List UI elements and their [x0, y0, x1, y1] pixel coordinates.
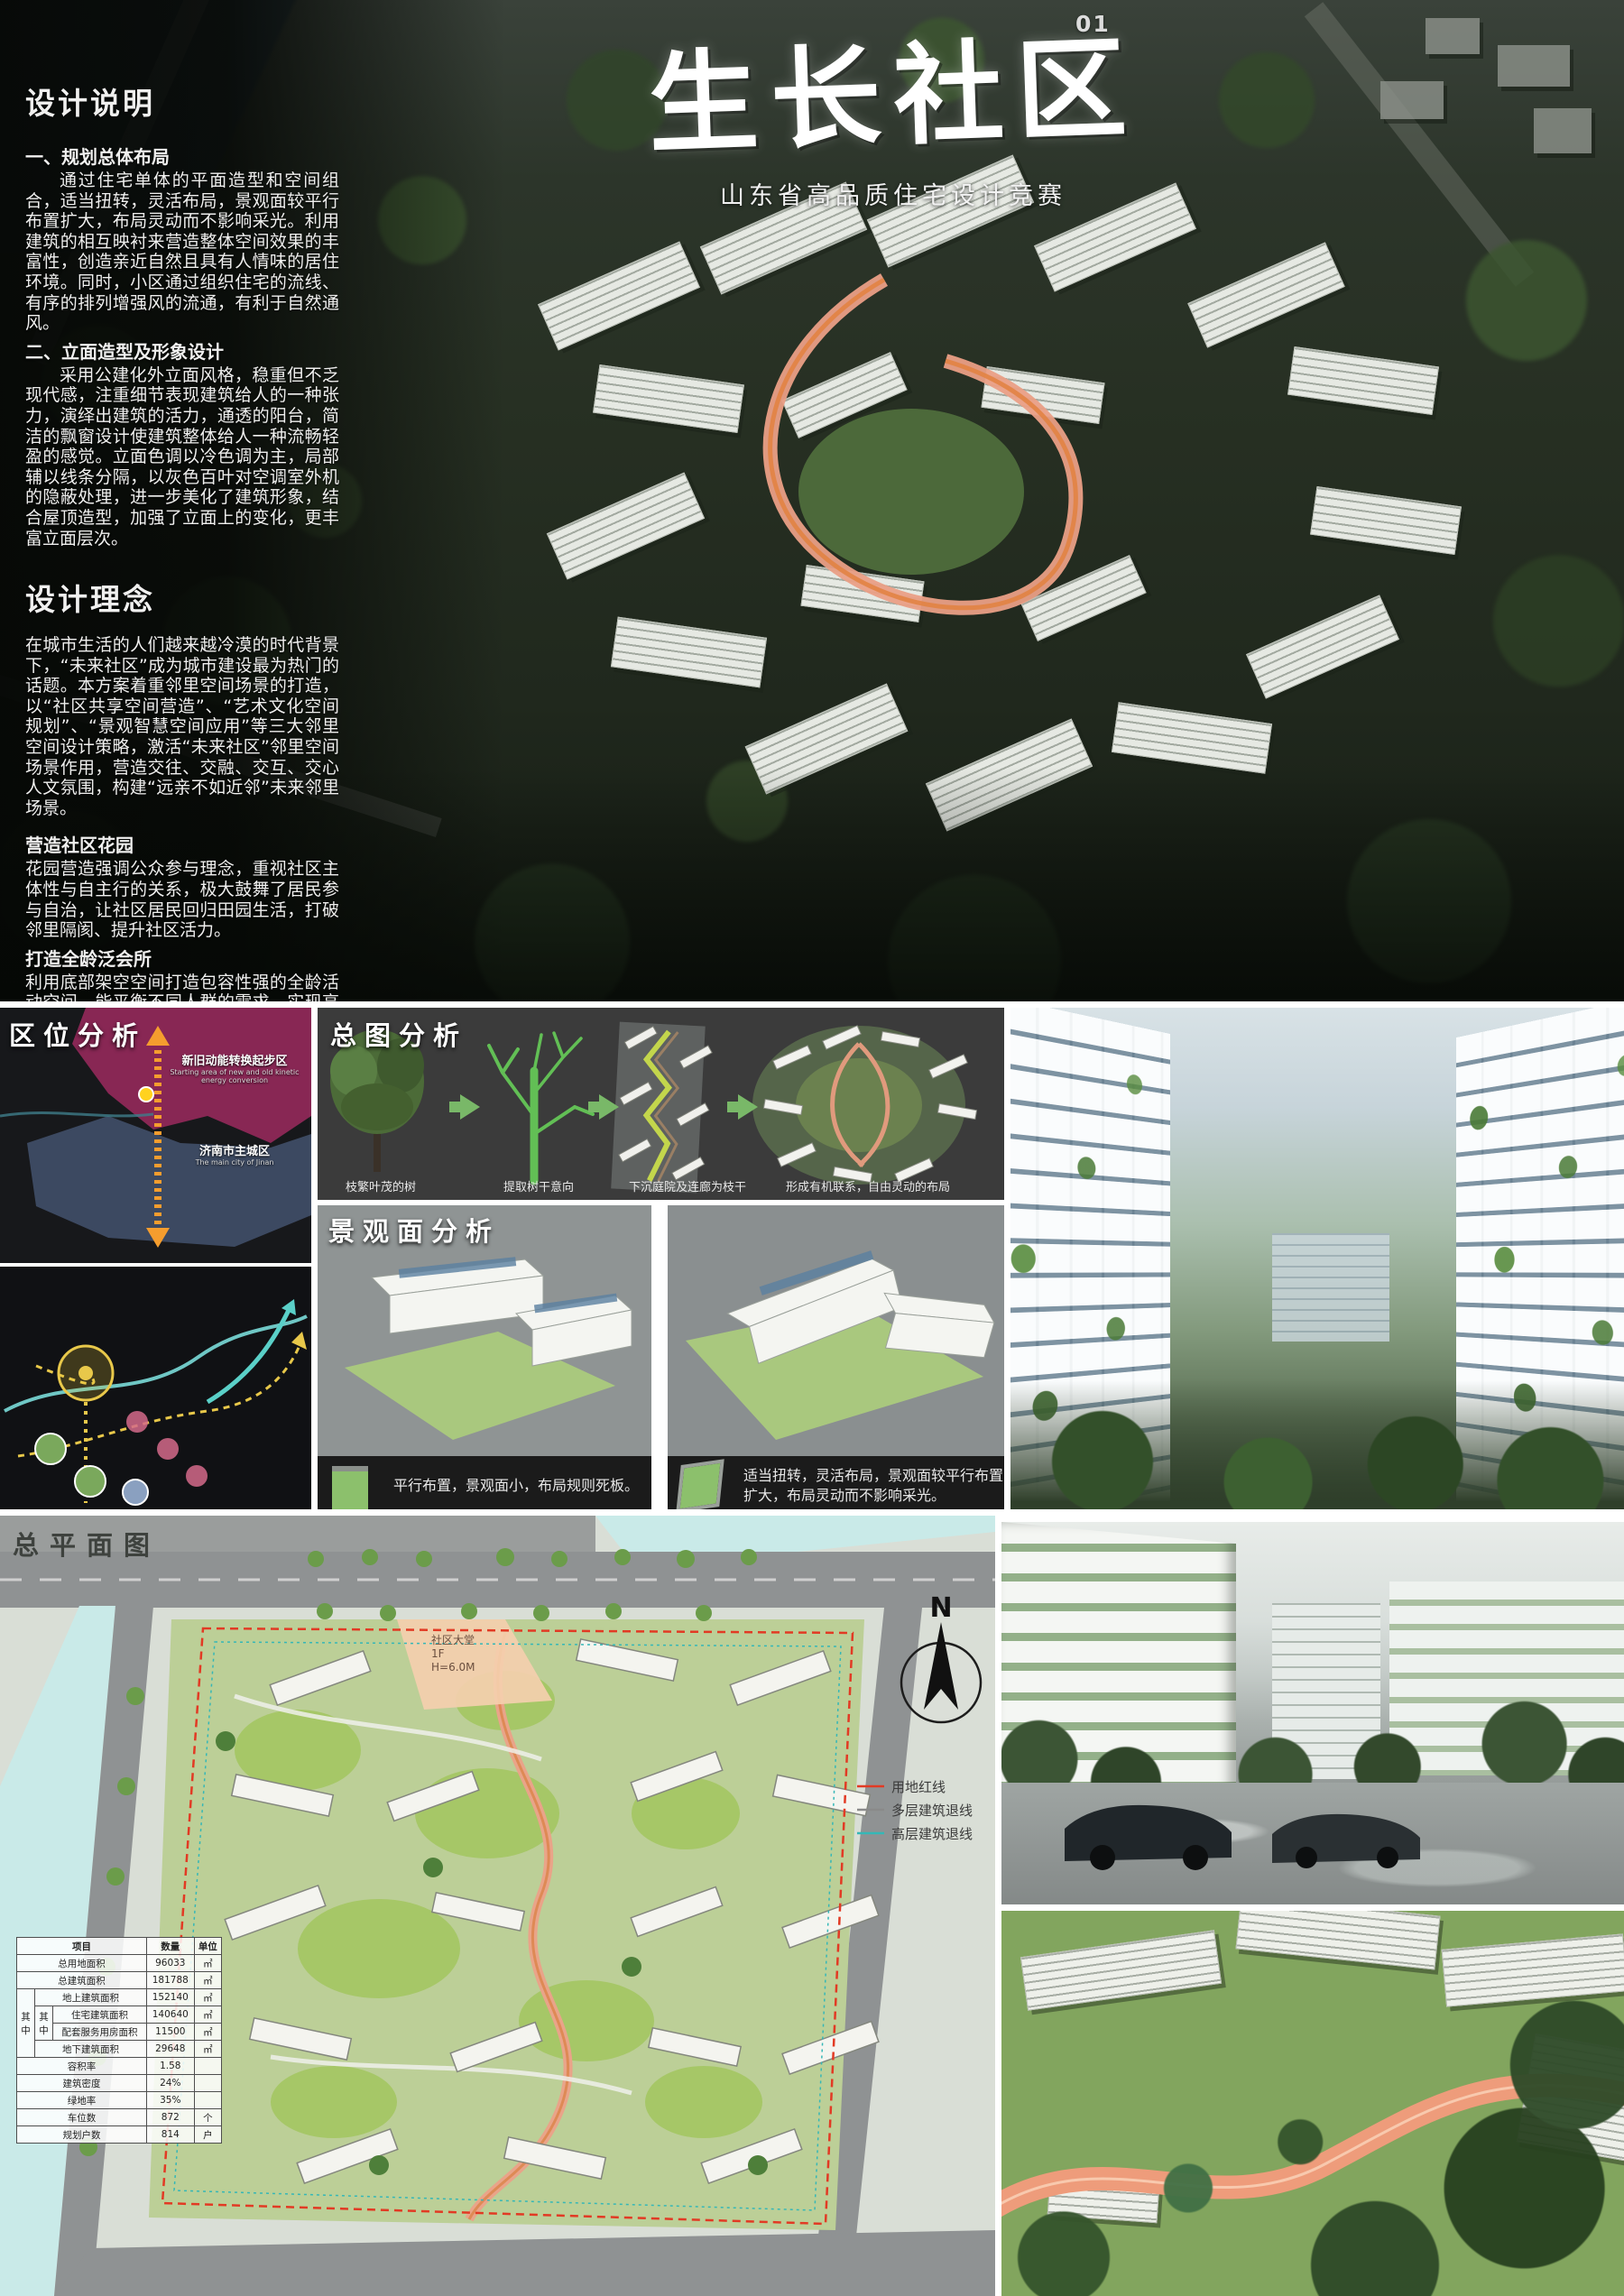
title-block: 生长社区 山东省高品质住宅设计竞赛: [505, 7, 1281, 211]
landscape-analysis-heading: 景观面分析: [328, 1211, 500, 1249]
landscape-analysis-panel-parallel: 景观面分析 平行布置，景观面小，布局规则死板。: [318, 1205, 651, 1516]
table-row: 车位数872个: [17, 2109, 222, 2126]
arrow-right-icon: [460, 1094, 480, 1120]
courtyard-greenery: [1010, 1380, 1624, 1516]
table-row: 建筑密度24%: [17, 2075, 222, 2092]
divider: [651, 1205, 668, 1516]
design-notes-heading: 设计说明: [25, 79, 339, 123]
garden-title: 营造社区花园: [25, 831, 339, 857]
table-row: 容积率1.58: [17, 2058, 222, 2075]
site-data-table: 项目 数量 单位 总用地面积96033㎡ 总建筑面积181788㎡ 其中 地上建…: [16, 1937, 222, 2144]
garden-body: 花园营造强调公众参与理念，重视社区主体性与自主行的关系，极大鼓舞了居民参与自治，…: [25, 859, 339, 940]
site-data-table-wrap: 项目 数量 单位 总用地面积96033㎡ 总建筑面积181788㎡ 其中 地上建…: [16, 1937, 222, 2144]
north-region-label: 新旧动能转换起步区 Starting area of new and old k…: [167, 1051, 302, 1084]
design-concept-heading: 设计理念: [25, 576, 339, 619]
distant-building: [1272, 1233, 1389, 1342]
table-header-unit: 单位: [194, 1938, 221, 1955]
divider: [1004, 1008, 1010, 1516]
step-caption: 下沉庭院及连廊为枝干: [588, 1177, 787, 1194]
masterplan-analysis-panel: 总图分析: [318, 1008, 1004, 1200]
design-notes-column: 设计说明 一、规划总体布局 通过住宅单体的平面造型和空间组合，适当扭转，灵活布局…: [25, 79, 339, 1001]
location-analysis-panel: 区位分析 新旧动能转换起步区 Starting area of new and …: [0, 1008, 311, 1516]
table-header-qty: 数量: [146, 1938, 194, 1955]
svg-text:社区大堂: 社区大堂: [431, 1633, 475, 1646]
rendering-courtyard-photo: [1010, 1008, 1624, 1516]
site-context-map: [0, 1267, 311, 1516]
rendering-street-photo: [1001, 1522, 1624, 1904]
regional-location-map: 区位分析 新旧动能转换起步区 Starting area of new and …: [0, 1008, 311, 1263]
svg-text:N: N: [929, 1592, 952, 1624]
site-location-dot: [139, 1087, 153, 1102]
hero-aerial-rendering: 01 生长社区 山东省高品质住宅设计竞赛 设计说明 一、规划总体布局 通过住宅单…: [0, 0, 1624, 1001]
table-row: 总用地面积96033㎡: [17, 1955, 222, 1972]
rotated-layout-diagram: [668, 1205, 1004, 1456]
section-title: 一、规划总体布局: [25, 143, 339, 169]
divider: [0, 1001, 1624, 1008]
table-row: 绿地率35%: [17, 2092, 222, 2109]
divider: [1001, 1904, 1624, 1911]
divider: [0, 1263, 311, 1267]
courtyard-strip-figure: [611, 1022, 713, 1194]
landscape-analysis-panel-rotated: 适当扭转，灵活布局，景观面较平行布置扩大，布局灵动而不影响采光。: [668, 1205, 1004, 1516]
step-caption: 形成有机联系，自由灵动的布局: [769, 1177, 967, 1194]
caption-strip: 平行布置，景观面小，布局规则死板。: [318, 1456, 651, 1516]
rendering-aerial-courtyard-photo: [1001, 1911, 1624, 2296]
table-row: 规划户数814户: [17, 2126, 222, 2144]
divider: [311, 1008, 318, 1516]
divider: [0, 1509, 1624, 1516]
table-row: 其中 地上建筑面积152140㎡: [17, 1989, 222, 2006]
caption-strip: 适当扭转，灵活布局，景观面较平行布置扩大，布局灵动而不影响采光。: [668, 1456, 1004, 1516]
trunk-diagram-figure: [489, 1033, 593, 1181]
courtyard-trees: [1001, 1911, 1624, 2296]
club-title: 打造全龄泛会所: [25, 945, 339, 971]
layout-swatch: [332, 1466, 368, 1516]
legend-label: 多层建筑退线: [891, 1803, 973, 1819]
layout-swatch: [680, 1463, 721, 1508]
analysis-band: 区位分析 新旧动能转换起步区 Starting area of new and …: [0, 1008, 1624, 1516]
table-row: 地下建筑面积29648㎡: [17, 2041, 222, 2058]
panel-caption: 适当扭转，灵活布局，景观面较平行布置扩大，布局灵动而不影响采光。: [743, 1466, 1004, 1506]
table-row: 总建筑面积181788㎡: [17, 1972, 222, 1989]
masterplan-analysis-heading: 总图分析: [330, 1015, 467, 1053]
context-map-graphic: [0, 1267, 311, 1516]
section-body: 通过住宅单体的平面造型和空间组合，适当扭转，灵活布局，景观面较平行布置扩大，布局…: [25, 171, 339, 334]
parked-cars: [1001, 1775, 1624, 1883]
divider: [995, 1516, 1001, 2296]
svg-text:H=6.0M: H=6.0M: [431, 1661, 475, 1674]
section-body: 采用公建化外立面风格，稳重但不乏现代感，注重细节表现建筑给人的一种张力，演绎出建…: [25, 365, 339, 549]
panel-caption: 平行布置，景观面小，布局规则死板。: [393, 1476, 651, 1496]
section-title: 二、立面造型及形象设计: [25, 337, 339, 364]
poster-subtitle: 山东省高品质住宅设计竞赛: [505, 176, 1281, 211]
site-plan-graphic: N 用地红线 多层建筑退线 高层建筑退线 社区大堂 1F H=6.0M: [0, 1516, 995, 2296]
organic-layout-figure: [752, 1026, 977, 1185]
site-plan-heading: 总平面图: [13, 1525, 161, 1563]
poster-title: 生长社区: [503, 0, 1284, 180]
location-analysis-heading: 区位分析: [9, 1015, 146, 1053]
arrow-right-icon: [599, 1094, 619, 1120]
legend-label: 用地红线: [891, 1779, 946, 1795]
south-region-label: 济南市主城区 The main city of Jinan: [171, 1141, 298, 1166]
concept-body: 在城市生活的人们越来越冷漠的时代背景下，“未来社区”成为城市建设最为热门的话题。…: [25, 635, 339, 818]
table-header-item: 项目: [17, 1938, 147, 1955]
competition-poster: 01 生长社区 山东省高品质住宅设计竞赛 设计说明 一、规划总体布局 通过住宅单…: [0, 0, 1624, 2296]
svg-text:1F: 1F: [431, 1647, 445, 1660]
site-plan-panel: N 用地红线 多层建筑退线 高层建筑退线 社区大堂 1F H=6.0M 总平面图: [0, 1516, 995, 2296]
table-row: 其中 住宅建筑面积140640㎡: [17, 2006, 222, 2024]
arrow-right-icon: [738, 1094, 758, 1120]
legend-label: 高层建筑退线: [891, 1826, 973, 1842]
club-body: 利用底部架空空间打造包容性强的全龄活动空间，能平衡不同人群的需求，实现高参与度社…: [25, 973, 339, 1001]
